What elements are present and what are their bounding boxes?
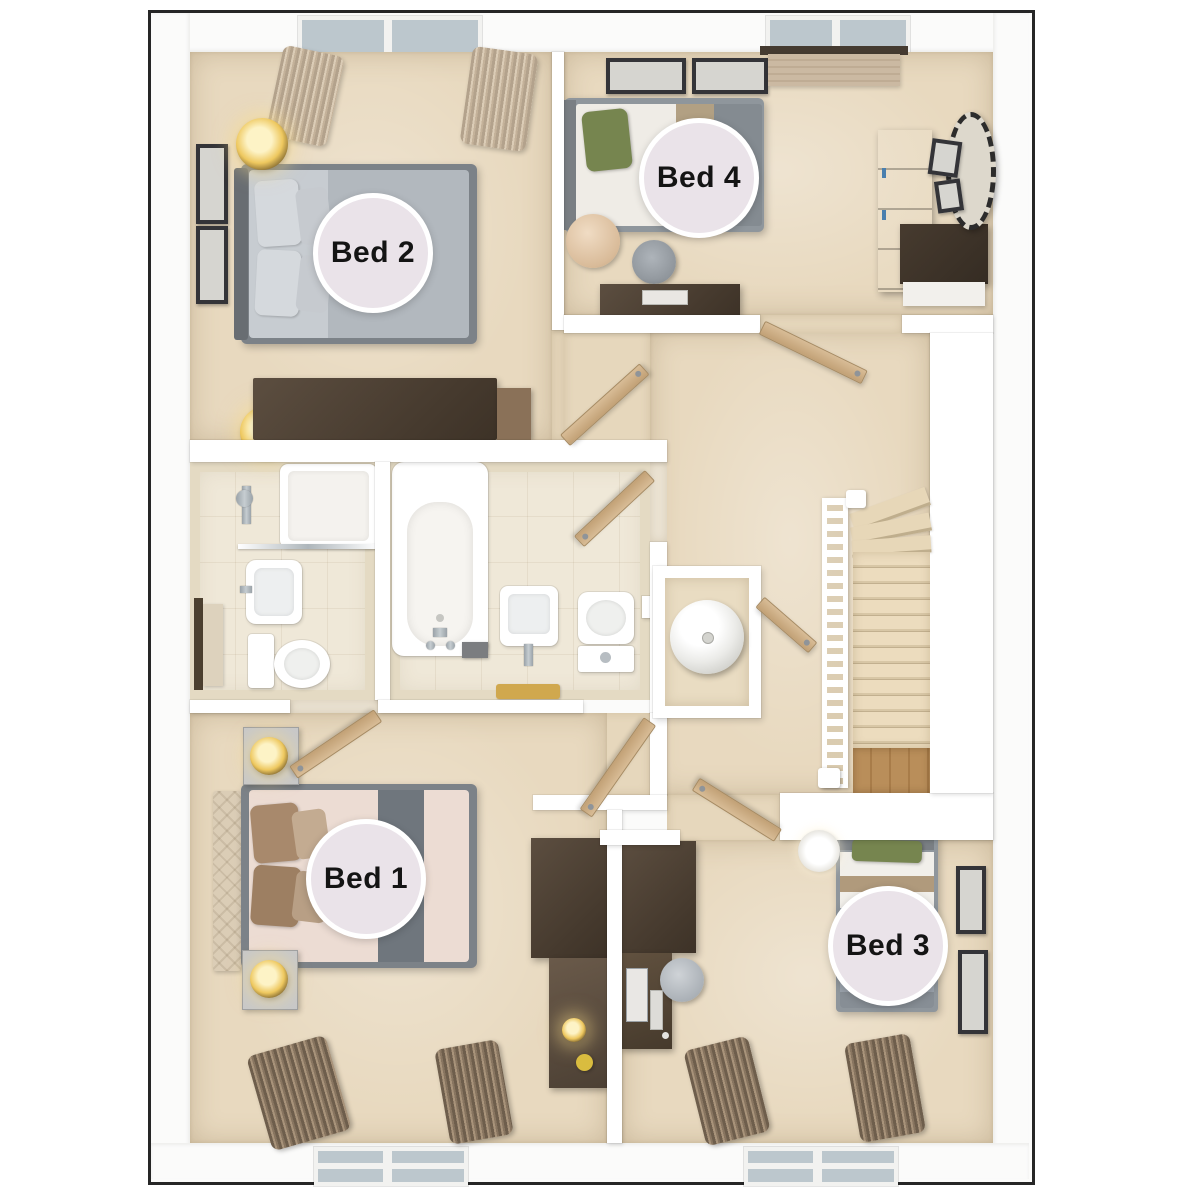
- bath-corner-step: [462, 642, 488, 658]
- shower-head: [236, 490, 253, 507]
- staircase: [853, 552, 930, 748]
- bed4-leaning-frame: [934, 178, 964, 213]
- bed3-picture-frame: [958, 950, 988, 1034]
- label-bed1: Bed 1: [306, 819, 426, 939]
- bed2-dresser: [253, 378, 497, 440]
- ensuite-doorway-floor: [290, 700, 378, 713]
- label-bed2-text: Bed 2: [331, 236, 415, 270]
- outer-wall-right: [993, 13, 1029, 1179]
- bed4-corner-desk-front: [903, 282, 985, 306]
- wall-bed2-bathrooms: [190, 440, 667, 462]
- bed2-headboard: [234, 168, 248, 340]
- bathtub-basin: [407, 502, 473, 646]
- bathroom-doorway-floor: [650, 462, 667, 542]
- wall-bed1-bed3: [607, 810, 622, 1143]
- stair-railing: [822, 498, 848, 788]
- bed2-curtain-right: [460, 46, 539, 152]
- floor-plan-page: Bed 2 Bed 4 Bed 1 Bed 3: [0, 0, 1200, 1201]
- bathroom-toilet-seat: [586, 600, 626, 636]
- bed4-blind: [768, 54, 900, 86]
- newel-post: [818, 768, 840, 788]
- window-mullion: [318, 1163, 464, 1169]
- bed4-picture-frame: [692, 58, 768, 94]
- ensuite-tap: [240, 586, 252, 593]
- bed3-monitor: [626, 968, 648, 1022]
- bed3-wardrobe: [620, 841, 696, 953]
- bed2-chest: [497, 388, 531, 440]
- ensuite-towel-rail: [194, 598, 203, 690]
- outer-wall-left: [151, 13, 190, 1179]
- bed4-corner-desk-dark: [900, 224, 988, 284]
- wall-ensuite-bathroom: [375, 462, 390, 700]
- wall-bathrooms-bed1-right: [378, 700, 583, 713]
- bed4-wardrobe-handle: [882, 168, 886, 178]
- bed3-ceiling-light: [798, 830, 840, 872]
- window-mullion: [748, 1163, 894, 1169]
- bed2-picture-frame: [196, 226, 228, 304]
- newel-post: [846, 490, 866, 508]
- bathtub-drain: [436, 614, 444, 622]
- bed4-headboard: [564, 100, 576, 230]
- bed2-doorway-floor: [552, 330, 564, 440]
- bed2-bedside-lamp: [236, 118, 288, 170]
- bed1-headboard: [213, 791, 241, 971]
- bath-tap: [446, 641, 455, 650]
- bed3-green-pillow: [852, 839, 923, 863]
- stair-bottom-floor: [853, 748, 930, 793]
- bed2-pillow: [254, 249, 301, 317]
- bed2-pillow: [254, 179, 302, 248]
- label-bed2: Bed 2: [313, 193, 433, 313]
- wall-stairwell: [930, 333, 993, 793]
- shower-screen: [238, 544, 378, 549]
- label-bed1-text: Bed 1: [324, 862, 408, 896]
- ensuite-towel: [203, 604, 223, 686]
- ensuite-toilet-cistern: [248, 634, 274, 688]
- bed4-green-pillow: [581, 108, 633, 172]
- bathroom-basin-inner: [508, 594, 550, 634]
- bed1-window: [314, 1147, 468, 1186]
- bed4-desk-chair: [632, 240, 676, 284]
- bed1-bedside-lamp: [250, 960, 288, 998]
- bed4-picture-frame: [606, 58, 686, 94]
- bed3-beanbag: [660, 958, 704, 1002]
- bed4-beanbag: [566, 214, 620, 268]
- bed2-window: [298, 16, 482, 56]
- label-bed3-text: Bed 3: [846, 929, 930, 963]
- bed1-bedside-lamp: [250, 737, 288, 775]
- wall-bed4-landing-left: [564, 315, 760, 333]
- bed2-picture-frame: [196, 144, 228, 224]
- cylinder-cap: [702, 632, 714, 644]
- bed1-stool: [576, 1054, 593, 1071]
- bed1-desk-lamp: [562, 1018, 586, 1042]
- bath-tap: [426, 641, 435, 650]
- bed3-mouse: [662, 1032, 669, 1039]
- wall-bed4-landing-right: [902, 315, 993, 333]
- bed4-keyboard: [642, 290, 688, 305]
- wall-bed2-bed4: [552, 52, 564, 330]
- wall-bathrooms-bed1-left: [190, 700, 290, 713]
- bath-spout: [433, 628, 447, 637]
- bed3-keyboard: [650, 990, 663, 1030]
- toilet-flush-button: [600, 652, 611, 663]
- wall-bed3-top-left: [600, 830, 680, 845]
- window-mullion: [384, 20, 392, 52]
- shower-tray-inner: [288, 471, 369, 541]
- bed1-wardrobe: [531, 838, 607, 958]
- label-bed4: Bed 4: [639, 118, 759, 238]
- bath-mat: [496, 684, 560, 699]
- bathroom-tap: [524, 644, 533, 666]
- ensuite-toilet-seat: [284, 648, 320, 680]
- bed4-leaning-frame: [928, 138, 963, 178]
- ensuite-basin-inner: [254, 568, 294, 616]
- bed3-picture-frame: [956, 866, 986, 934]
- label-bed4-text: Bed 4: [657, 161, 741, 195]
- bed4-wardrobe-handle: [882, 210, 886, 220]
- label-bed3: Bed 3: [828, 886, 948, 1006]
- bed3-window: [744, 1147, 898, 1186]
